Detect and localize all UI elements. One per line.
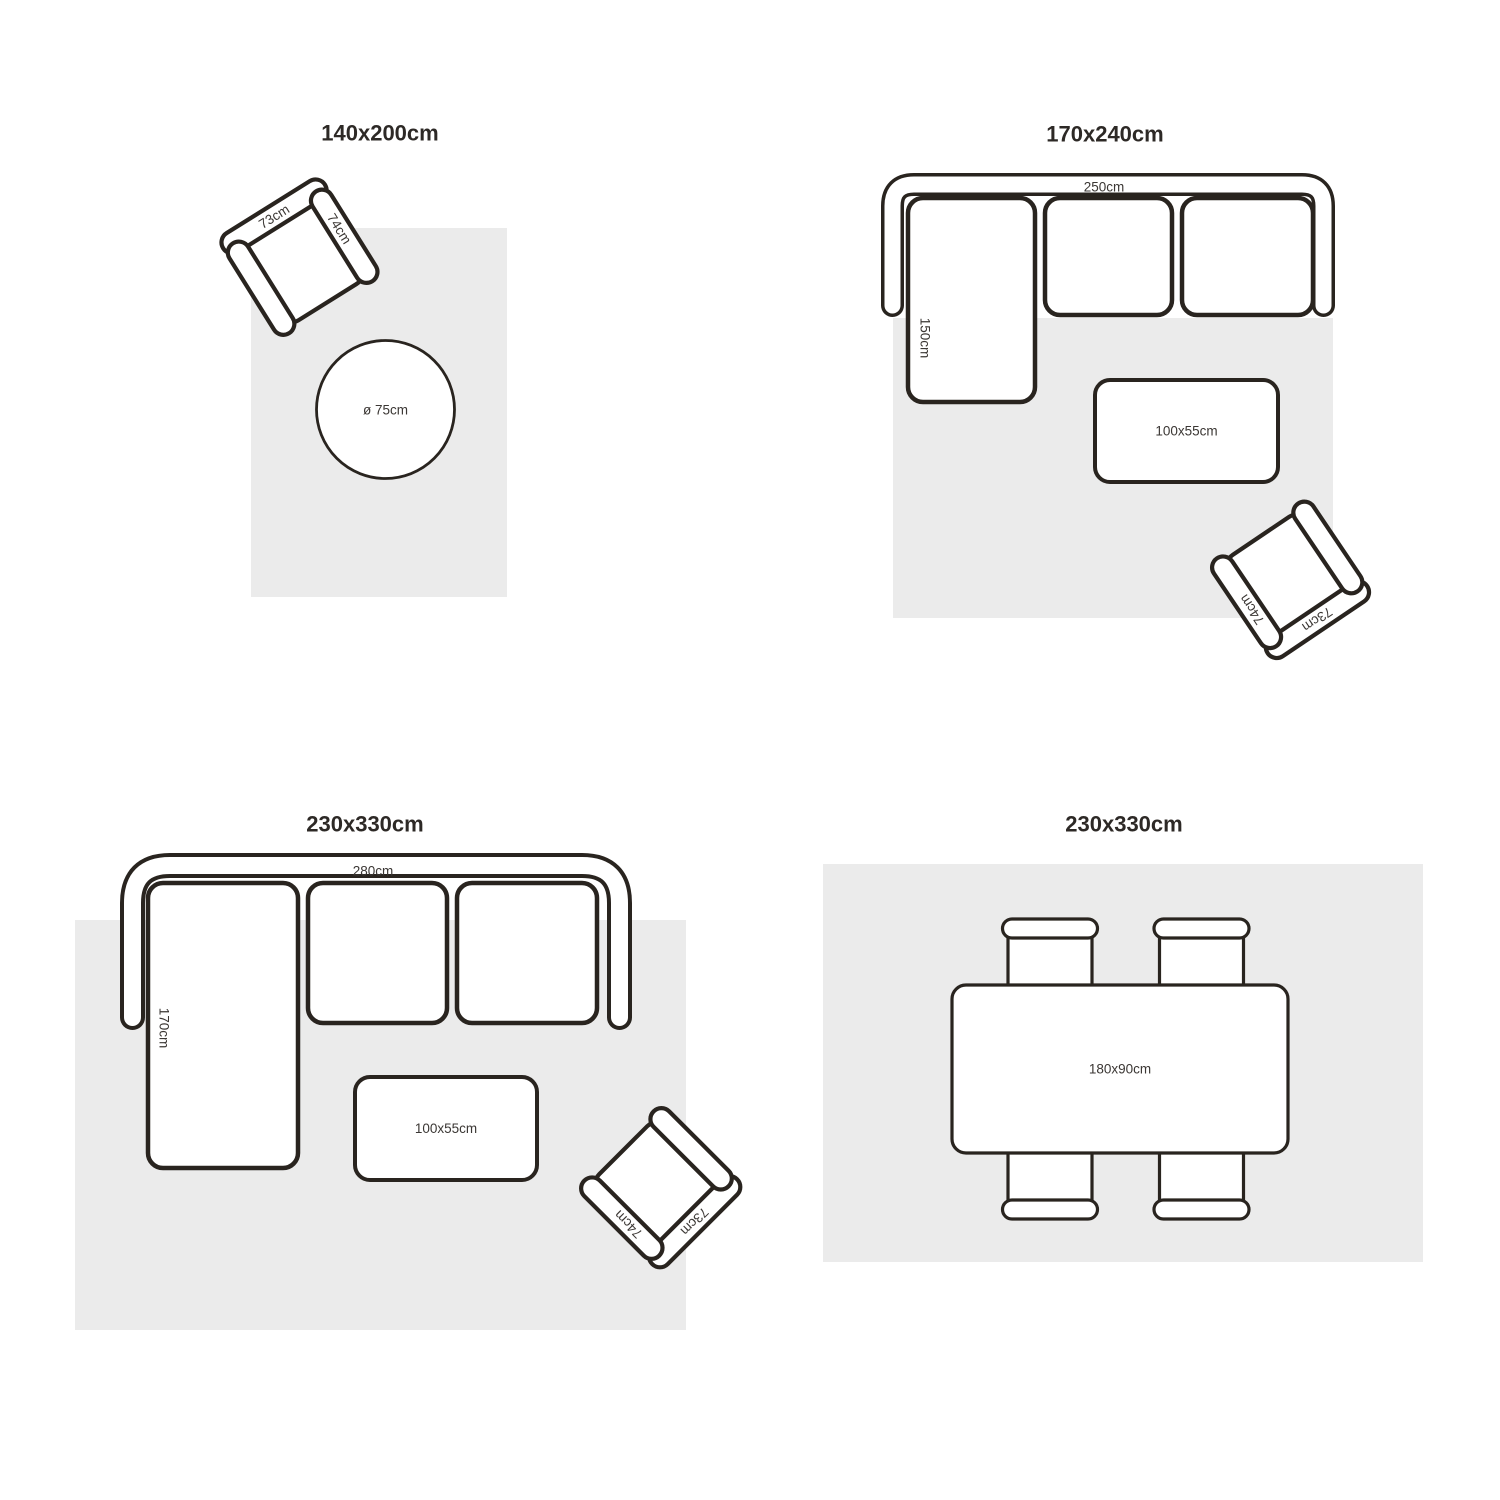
round-table-label: ø 75cm bbox=[363, 403, 408, 418]
panel-title: 230x330cm bbox=[306, 812, 423, 837]
panel-230x330-living: 230x330cm 280cm 170cm 100x55cm 73cm 74cm bbox=[75, 812, 745, 1330]
panel-title: 170x240cm bbox=[1046, 122, 1163, 147]
sofa-cushion bbox=[457, 883, 597, 1023]
coffee-table-label: 100x55cm bbox=[1155, 424, 1217, 439]
sofa-width-label: 250cm bbox=[1084, 180, 1125, 195]
sofa-cushion bbox=[308, 883, 447, 1023]
panel-140x200: 140x200cm 73cm 74cm ø 75cm bbox=[217, 121, 507, 597]
rug-size-guide-svg: 140x200cm 73cm 74cm ø 75cm 170x240cm 250… bbox=[0, 0, 1500, 1500]
dining-chair-seat bbox=[1160, 1151, 1244, 1205]
panel-230x330-dining: 230x330cm 180x90cm bbox=[823, 812, 1423, 1262]
dining-chair-seat bbox=[1160, 933, 1244, 987]
panel-title: 140x200cm bbox=[321, 121, 438, 146]
dining-chair-seat bbox=[1008, 1151, 1092, 1205]
sofa-depth-label: 150cm bbox=[917, 318, 932, 359]
panel-title: 230x330cm bbox=[1065, 812, 1182, 837]
dining-chair-back bbox=[1154, 919, 1249, 938]
sofa-chaise-cushion bbox=[908, 198, 1035, 402]
dining-chair-back bbox=[1154, 1200, 1249, 1219]
dining-chair bbox=[1154, 1151, 1249, 1219]
dining-table-label: 180x90cm bbox=[1089, 1062, 1151, 1077]
panel-170x240: 170x240cm 250cm 150cm 100x55cm 73cm 74cm bbox=[893, 122, 1374, 663]
rug-size-guide: 140x200cm 73cm 74cm ø 75cm 170x240cm 250… bbox=[0, 0, 1500, 1500]
dining-chair bbox=[1154, 919, 1249, 987]
dining-chair-back bbox=[1003, 1200, 1098, 1219]
sofa-width-label: 280cm bbox=[353, 864, 394, 879]
dining-chair bbox=[1003, 919, 1098, 987]
coffee-table-label: 100x55cm bbox=[415, 1121, 477, 1136]
dining-chair-seat bbox=[1008, 933, 1092, 987]
sofa-cushion bbox=[1182, 198, 1313, 315]
dining-chair-back bbox=[1003, 919, 1098, 938]
sofa-cushion bbox=[1045, 198, 1172, 315]
dining-chair bbox=[1003, 1151, 1098, 1219]
sofa-depth-label: 170cm bbox=[156, 1008, 171, 1049]
